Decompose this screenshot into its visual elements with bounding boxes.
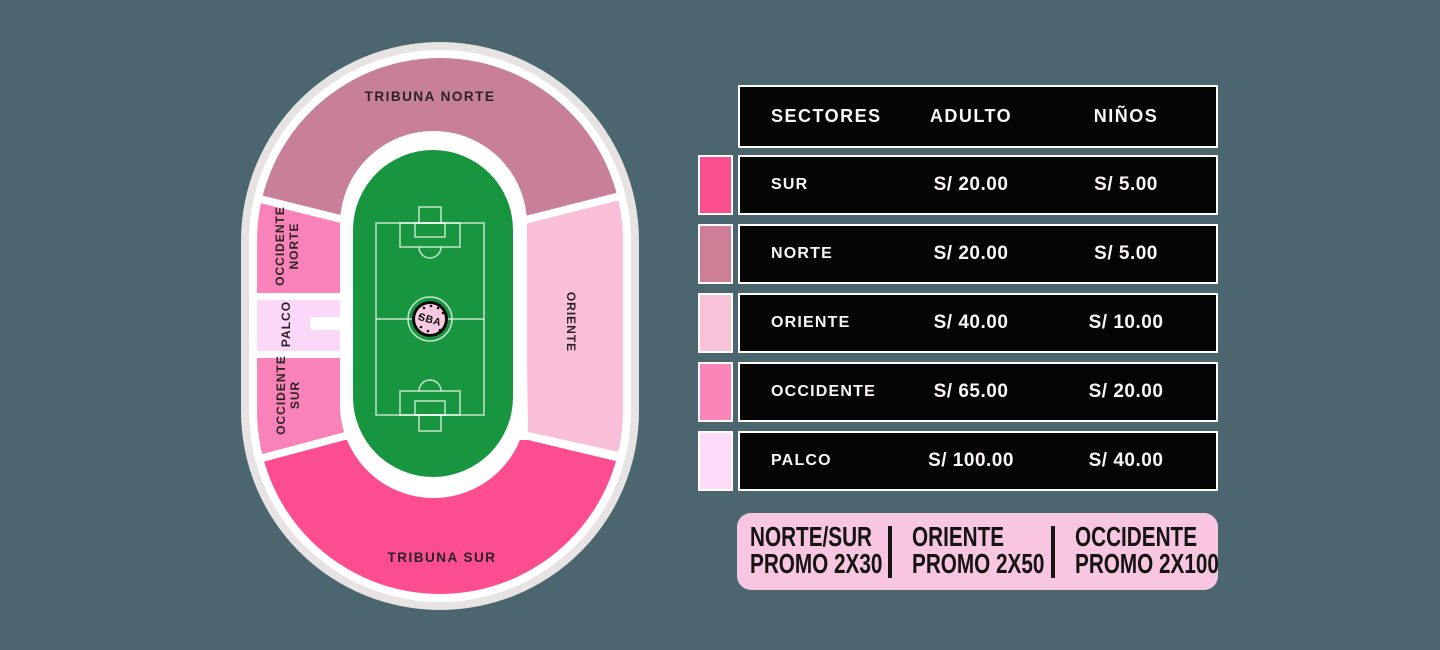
promo-norte-sur: NORTE/SUR PROMO 2X30: [750, 523, 882, 577]
row-adulto-price: S/ 20.00: [934, 243, 1009, 265]
label-occidente-norte-line2: NORTE: [287, 223, 301, 270]
row-sector: OCCIDENTE: [771, 383, 891, 401]
row-adulto-price: S/ 100.00: [928, 450, 1014, 472]
sector-color-swatch: [698, 362, 733, 422]
label-occidente-sur-line2: SUR: [288, 381, 302, 409]
table-row-norte: NORTE S/ 20.00 S/ 5.00: [698, 224, 1220, 284]
row-adulto-price: S/ 65.00: [934, 381, 1009, 403]
pricing-table-header: SECTORES ADULTO NIÑOS: [738, 85, 1218, 148]
row-sector: NORTE: [771, 245, 891, 263]
label-occidente-norte-line1: OCCIDENTE: [273, 206, 287, 286]
sector-color-swatch: [698, 293, 733, 353]
sba-club-logo: SBA: [412, 301, 448, 337]
row-ninos-price: S/ 20.00: [1089, 381, 1164, 403]
table-row-occidente: OCCIDENTE S/ 65.00 S/ 20.00: [698, 362, 1220, 422]
row-sector: PALCO: [771, 452, 891, 470]
header-sectores: SECTORES: [771, 106, 891, 127]
row-adulto-price: S/ 40.00: [934, 312, 1009, 334]
header-adulto: ADULTO: [930, 106, 1012, 127]
table-row-palco: PALCO S/ 100.00 S/ 40.00: [698, 431, 1220, 491]
palco-tunnel-notch: [310, 317, 344, 330]
sector-color-swatch: [698, 431, 733, 491]
label-occidente-sur-line1: OCCIDENTE: [274, 355, 288, 435]
stadium-map: SBA TRIBUNA NORTE TRIBUNA SUR OCCIDENTE …: [238, 28, 648, 618]
promo-oriente: ORIENTE PROMO 2X50: [912, 523, 1044, 577]
row-ninos-price: S/ 40.00: [1089, 450, 1164, 472]
label-oriente: ORIENTE: [564, 292, 578, 352]
table-row-oriente: ORIENTE S/ 40.00 S/ 10.00: [698, 293, 1220, 353]
sector-color-swatch: [698, 155, 733, 215]
row-ninos-price: S/ 5.00: [1094, 243, 1158, 265]
row-adulto-price: S/ 20.00: [934, 174, 1009, 196]
promo-occidente: OCCIDENTE PROMO 2X100: [1075, 523, 1219, 577]
row-ninos-price: S/ 5.00: [1094, 174, 1158, 196]
promo-divider: [1051, 526, 1055, 578]
promo-divider: [888, 526, 892, 578]
promo-banner: NORTE/SUR PROMO 2X30 ORIENTE PROMO 2X50 …: [737, 513, 1218, 590]
table-row-sur: SUR S/ 20.00 S/ 5.00: [698, 155, 1220, 215]
label-tribuna-norte: TRIBUNA NORTE: [365, 89, 496, 104]
row-sector: ORIENTE: [771, 314, 891, 332]
header-ninos: NIÑOS: [1094, 106, 1159, 127]
label-palco: PALCO: [279, 301, 293, 347]
label-tribuna-sur: TRIBUNA SUR: [388, 550, 497, 565]
row-ninos-price: S/ 10.00: [1089, 312, 1164, 334]
sector-color-swatch: [698, 224, 733, 284]
row-sector: SUR: [771, 176, 891, 194]
pricing-table: SECTORES ADULTO NIÑOS SUR S/ 20.00 S/ 5.…: [698, 85, 1220, 500]
